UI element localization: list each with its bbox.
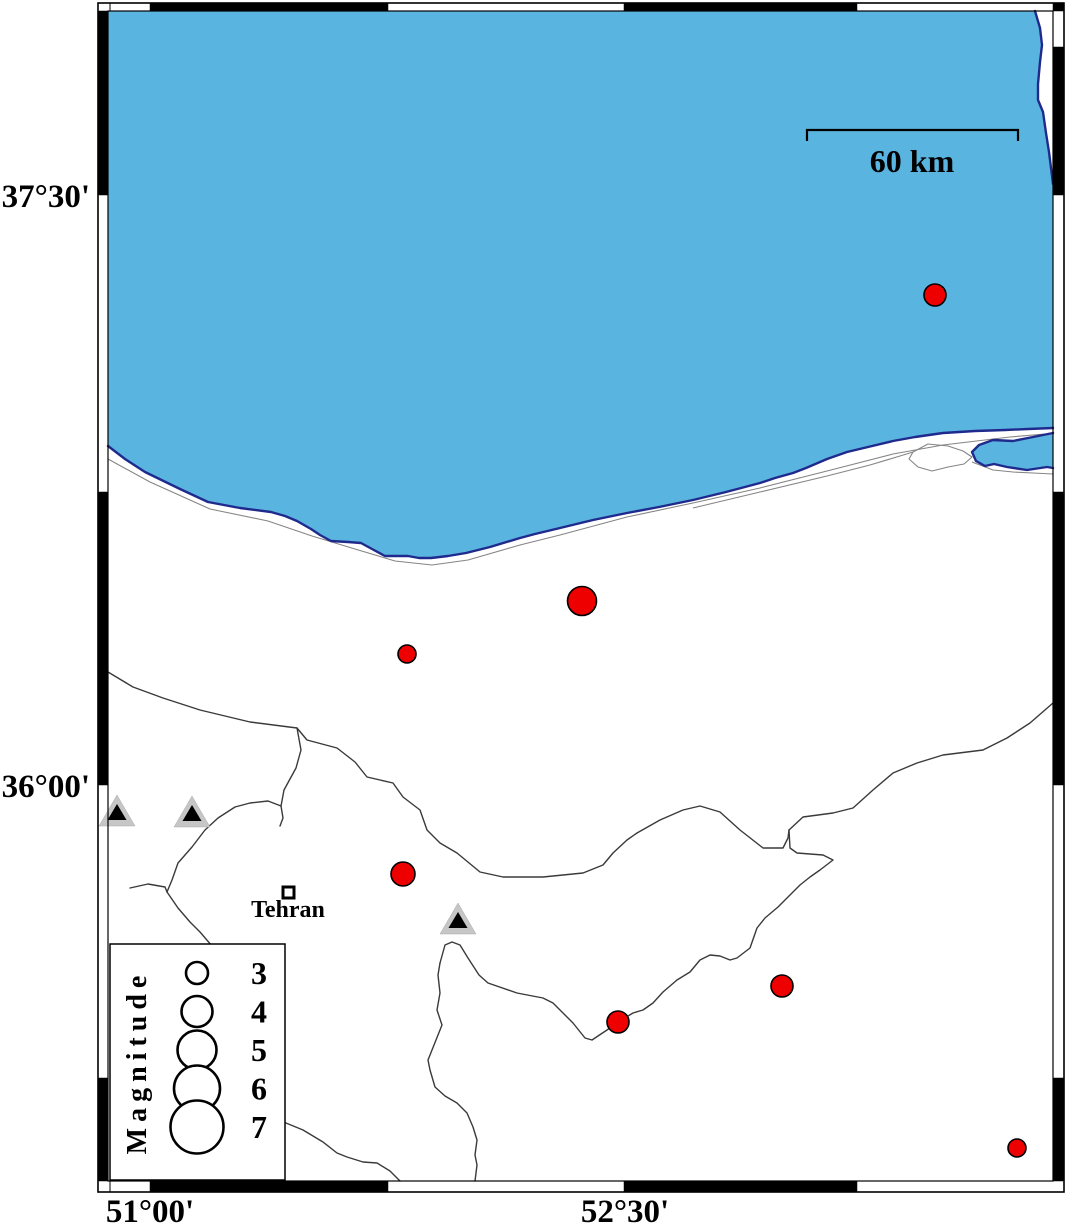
earthquake-marker [1008,1139,1026,1157]
earthquake-marker [568,587,597,616]
earthquake-marker [771,975,793,997]
lat-label-top: 37°30' [2,179,90,215]
earthquake-marker [924,284,946,306]
earthquake-marker [391,862,415,886]
scale-bar-label: 60 km [870,143,955,179]
map-page: 60 km Tehran 37°30' 36°00' 51°00' 52°30'… [0,0,1066,1229]
legend-magnitude-label: 7 [251,1109,267,1145]
lon-label-left: 51°00' [106,1194,194,1229]
earthquake-marker [607,1011,629,1033]
lon-label-right: 52°30' [581,1194,669,1229]
legend-size-circle [186,962,208,984]
legend-size-circle [182,996,213,1027]
legend-magnitude-label: 6 [251,1071,267,1107]
map-canvas: 60 km Tehran 37°30' 36°00' 51°00' 52°30'… [0,0,1066,1229]
earthquake-marker [398,645,416,663]
magnitude-legend: Magnitude 34567 [110,944,285,1180]
legend-size-circle [171,1101,224,1154]
legend-magnitude-label: 3 [251,955,267,991]
legend-size-circle [178,1031,217,1070]
lat-label-bottom: 36°00' [2,769,90,805]
legend-magnitude-label: 4 [251,994,267,1030]
legend-title: Magnitude [122,970,153,1155]
legend-magnitude-label: 5 [251,1032,267,1068]
tehran-label: Tehran [251,897,325,923]
